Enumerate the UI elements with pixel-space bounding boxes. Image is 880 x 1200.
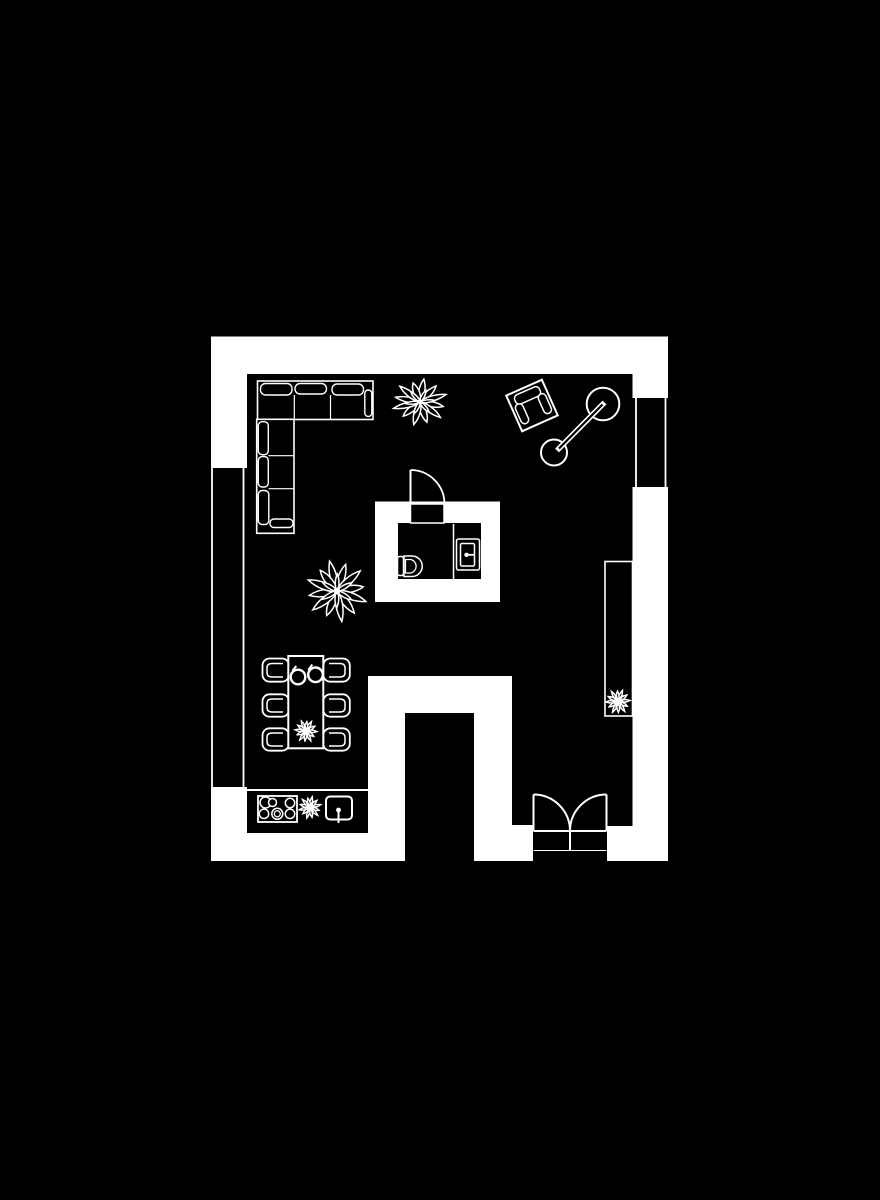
- corridor-wall-left: [368, 710, 405, 861]
- corridor-wall-top: [368, 676, 512, 713]
- door-threshold: [534, 851, 607, 867]
- sofa-armrest: [270, 519, 293, 528]
- vanity-sink: [457, 539, 480, 570]
- sofa-armrest: [365, 390, 372, 417]
- stove: [258, 796, 297, 822]
- bathroom-door-opening: [411, 504, 445, 523]
- dining-chair: [263, 694, 290, 716]
- floor-plan-canvas: [0, 0, 880, 1200]
- wall-top: [211, 337, 668, 375]
- toilet: [398, 556, 423, 577]
- wall-left-upper: [211, 337, 247, 469]
- window-left: [211, 468, 247, 787]
- kitchen-sink: [326, 797, 352, 824]
- dining-chair: [263, 659, 290, 682]
- dining-chair: [323, 659, 350, 682]
- sideboard: [603, 562, 633, 718]
- dining-chair: [323, 694, 350, 716]
- dining-set: [263, 656, 350, 751]
- window-right: [633, 398, 669, 487]
- wall-bottom-right: [607, 826, 668, 861]
- corridor-wall-right: [474, 710, 512, 826]
- wall-bottom-mid: [474, 825, 533, 861]
- floor-plan-page: [0, 0, 880, 1200]
- dining-chair: [323, 728, 350, 750]
- dining-chair: [263, 728, 290, 750]
